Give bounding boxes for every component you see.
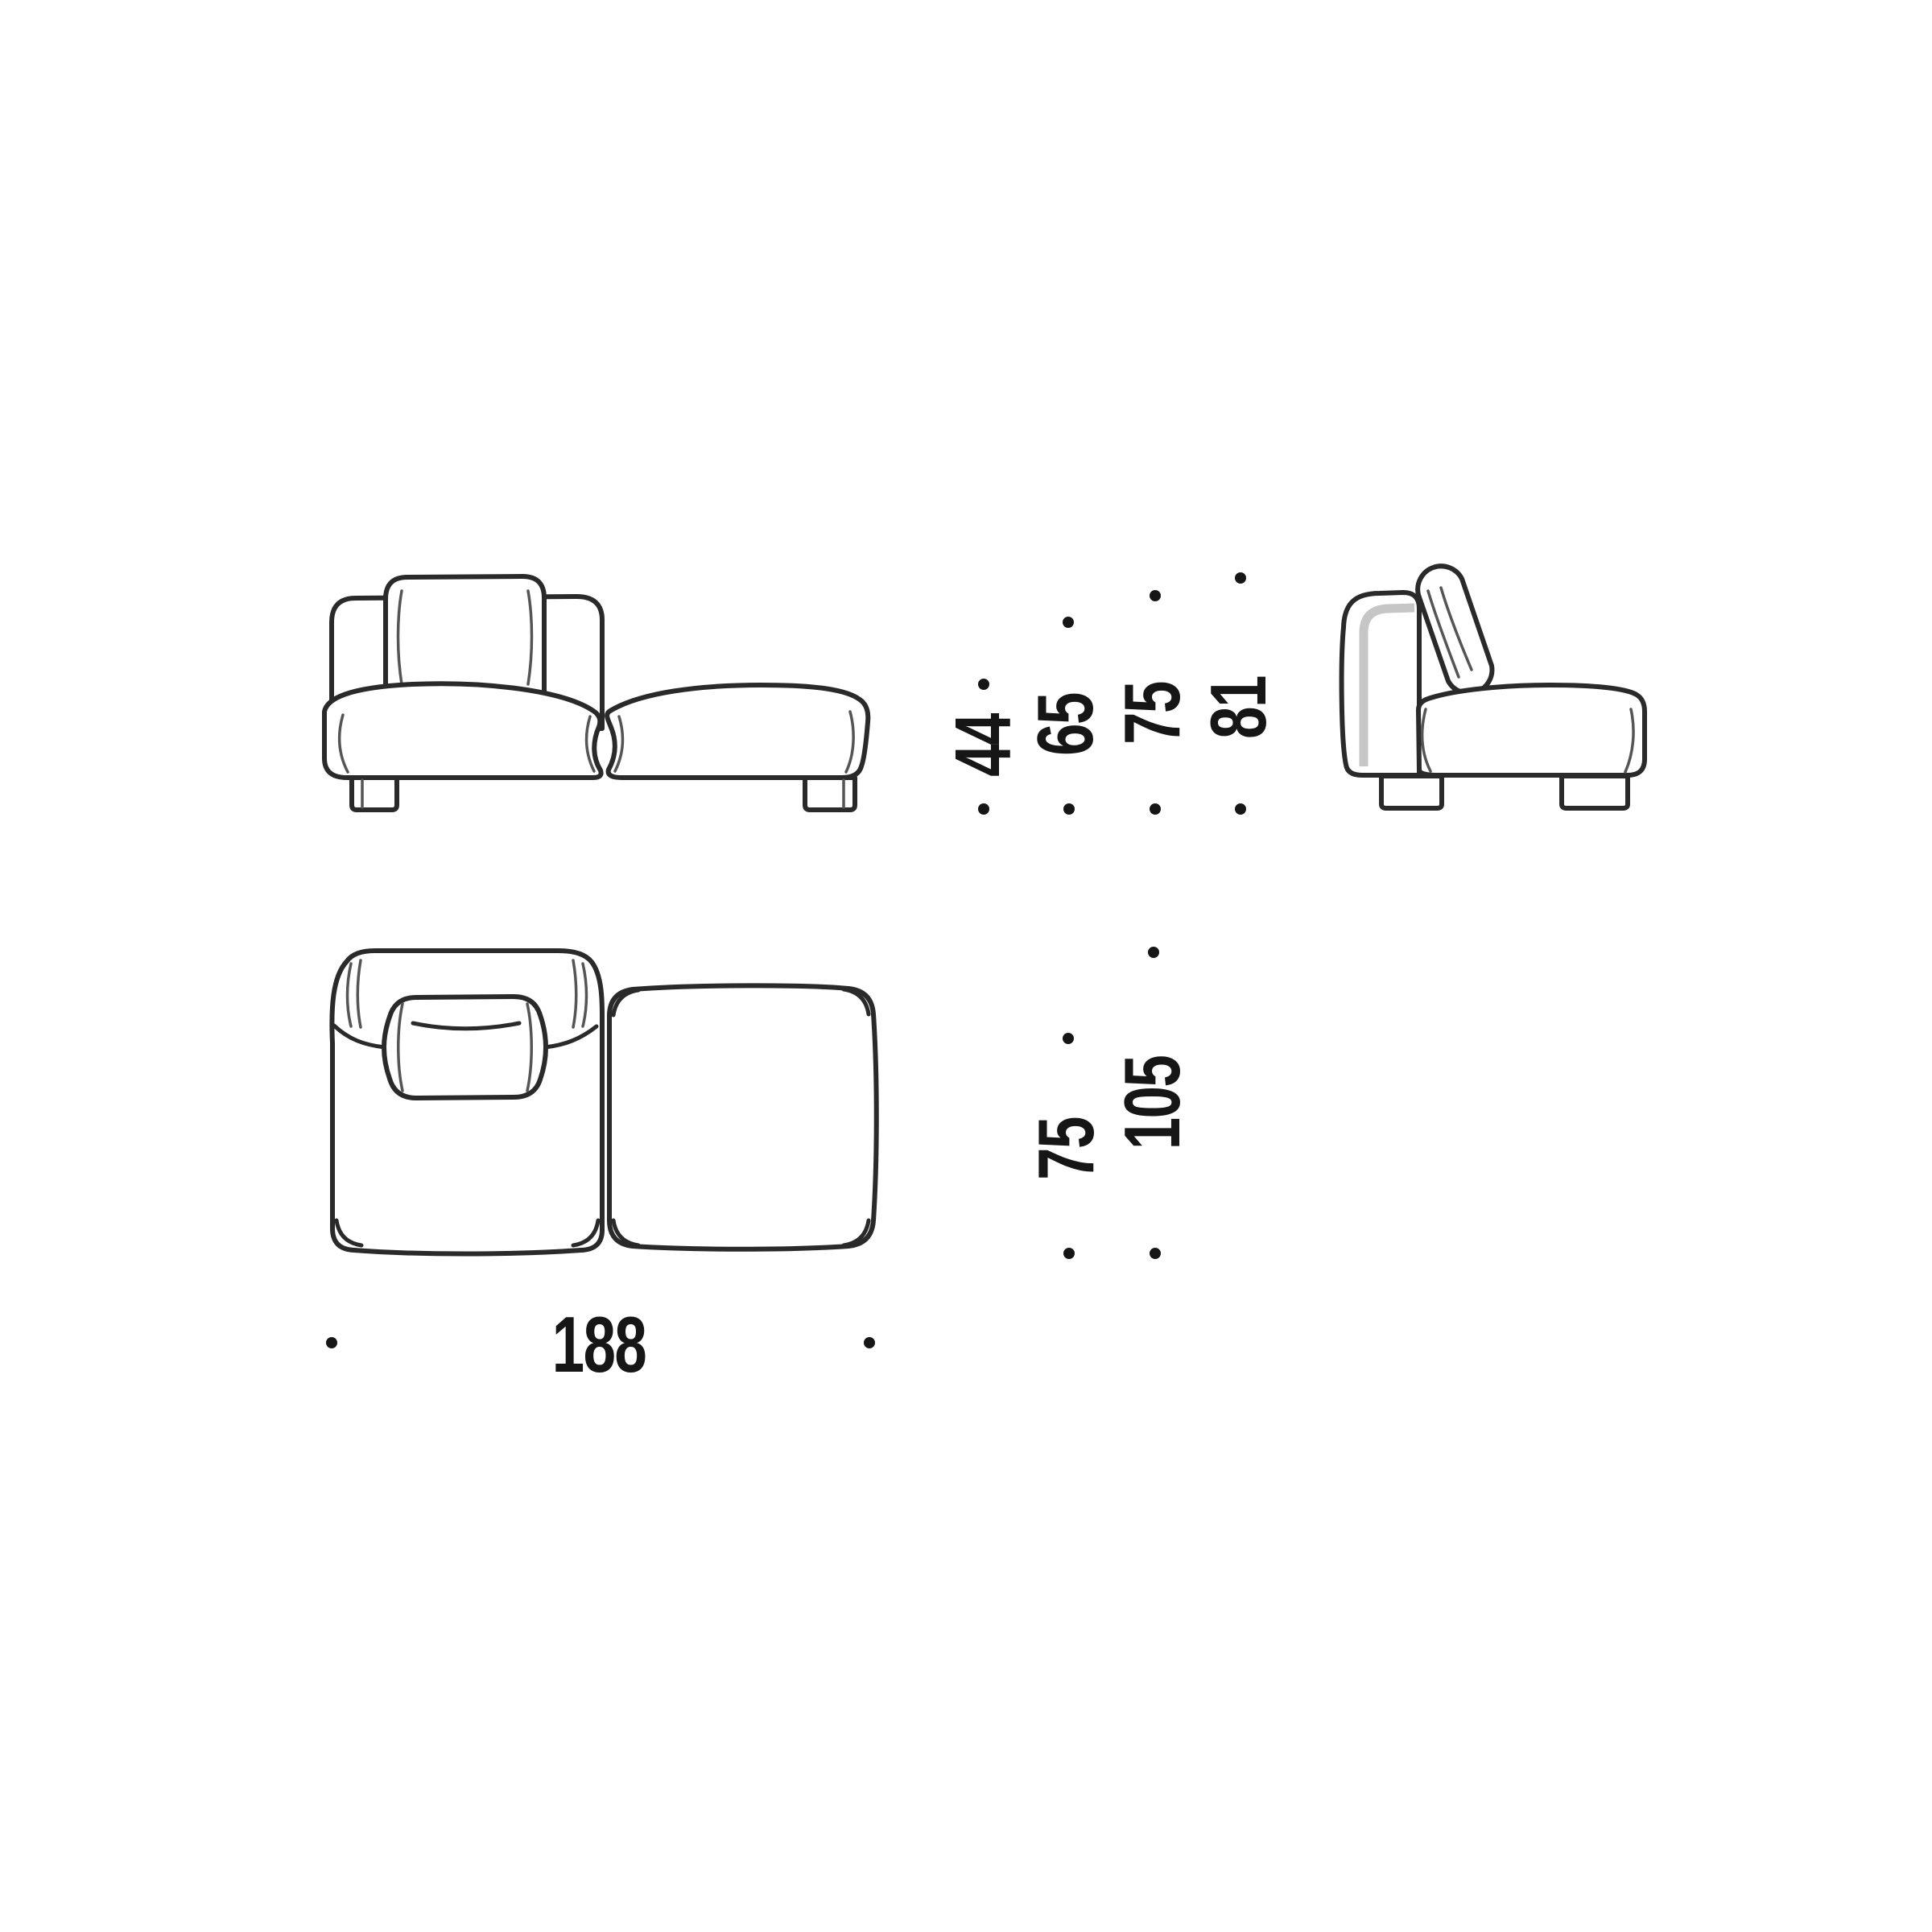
dimension-dot xyxy=(326,1337,337,1348)
diagram-canvas: 44 65 75 81 75 105 188 xyxy=(0,0,1932,1932)
dimension-dot xyxy=(1150,803,1161,815)
dimension-dot xyxy=(1235,803,1246,815)
dimension-dot xyxy=(1235,572,1246,584)
side-elevation-view xyxy=(1342,566,1645,808)
dimension-dot xyxy=(1063,617,1074,628)
front-ottoman xyxy=(607,685,868,778)
dimension-dot xyxy=(978,679,989,690)
front-seat-main xyxy=(324,683,601,778)
side-leg-right xyxy=(1562,776,1628,808)
front-elevation-view xyxy=(324,576,868,810)
dimension-dot xyxy=(1063,1033,1074,1044)
dimension-label-height-44: 44 xyxy=(939,713,1027,777)
plan-right-module xyxy=(609,985,877,1249)
dimension-dot xyxy=(864,1337,875,1348)
side-leg-left xyxy=(1381,776,1442,808)
front-leg-left xyxy=(352,778,397,810)
depth-dimensions: 75 105 xyxy=(1022,947,1196,1259)
dimension-label-width-188: 188 xyxy=(552,1301,646,1389)
dimension-label-height-75: 75 xyxy=(1108,682,1196,745)
front-leg-ottoman xyxy=(805,778,855,810)
dimension-dot xyxy=(1063,803,1075,815)
height-dimensions: 44 65 75 81 xyxy=(939,572,1282,815)
dimension-label-depth-75: 75 xyxy=(1022,1117,1110,1180)
width-dimension: 188 xyxy=(326,1301,875,1389)
dimension-dot xyxy=(978,803,989,815)
dimension-dot xyxy=(1150,1248,1161,1259)
dimension-dot xyxy=(1063,1248,1075,1259)
plan-back-cushion xyxy=(384,997,546,1098)
dimension-dot xyxy=(1150,590,1161,601)
side-seat xyxy=(1418,685,1645,775)
dimension-label-height-81: 81 xyxy=(1195,676,1282,739)
dimension-label-height-65: 65 xyxy=(1022,693,1109,756)
dimension-label-depth-105: 105 xyxy=(1108,1056,1196,1150)
side-backrest-panel xyxy=(1342,592,1419,775)
furniture-dimension-drawing: 44 65 75 81 75 105 188 xyxy=(0,0,1932,1932)
dimension-dot xyxy=(1148,947,1159,958)
plan-view xyxy=(332,951,876,1254)
